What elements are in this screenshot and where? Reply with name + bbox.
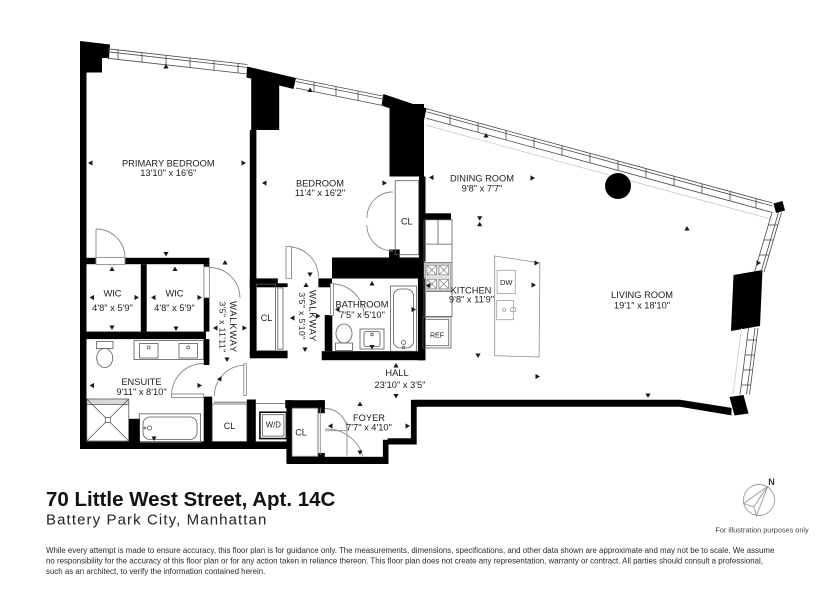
svg-text:WALKWAY: WALKWAY	[308, 290, 319, 342]
svg-text:For illustration purposes only: For illustration purposes only	[715, 526, 809, 535]
svg-text:REF: REF	[430, 333, 444, 340]
svg-text:CL: CL	[261, 313, 273, 323]
svg-text:WIC: WIC	[103, 288, 121, 298]
svg-text:WALKWAY: WALKWAY	[228, 301, 239, 353]
svg-text:DW: DW	[500, 278, 513, 287]
svg-text:Battery Park City, Manhattan: Battery Park City, Manhattan	[46, 512, 267, 529]
svg-text:N: N	[768, 477, 775, 487]
svg-text:BEDROOM: BEDROOM	[296, 178, 344, 188]
svg-text:3'5" x 11'11": 3'5" x 11'11"	[218, 301, 228, 352]
svg-text:4'8" x 5'9": 4'8" x 5'9"	[92, 303, 133, 313]
svg-text:no responsibility for the accu: no responsibility for the accuracy of th…	[46, 557, 763, 566]
svg-text:While every attempt is made to: While every attempt is made to ensure ac…	[46, 546, 775, 555]
svg-text:HALL: HALL	[385, 368, 408, 378]
svg-text:such as an architect, to verif: such as an architect, to verify the info…	[46, 567, 265, 576]
svg-text:WIC: WIC	[165, 288, 183, 298]
svg-text:ENSUITE: ENSUITE	[121, 377, 161, 387]
svg-text:CL: CL	[401, 216, 413, 226]
svg-text:4'8" x 5'9": 4'8" x 5'9"	[154, 303, 195, 313]
svg-text:7'5" x 5'10": 7'5" x 5'10"	[339, 310, 385, 320]
svg-text:9'8" x 7'7": 9'8" x 7'7"	[462, 183, 503, 193]
svg-text:DINING ROOM: DINING ROOM	[450, 173, 514, 183]
svg-text:BATHROOM: BATHROOM	[335, 300, 388, 310]
svg-text:CL: CL	[295, 428, 307, 438]
svg-text:CL: CL	[224, 421, 236, 431]
svg-text:70 Little West Street, Apt. 14: 70 Little West Street, Apt. 14C	[46, 488, 336, 511]
svg-text:9'11" x 8'10": 9'11" x 8'10"	[116, 387, 166, 397]
svg-text:11'4" x 16'2": 11'4" x 16'2"	[295, 188, 345, 198]
svg-text:FOYER: FOYER	[353, 413, 385, 423]
svg-text:3'5" x 5'10": 3'5" x 5'10"	[297, 292, 307, 339]
svg-text:7'7" x 4'10": 7'7" x 4'10"	[346, 423, 392, 433]
svg-text:PRIMARY BEDROOM: PRIMARY BEDROOM	[122, 159, 215, 169]
svg-text:LIVING ROOM: LIVING ROOM	[611, 290, 673, 300]
svg-text:19'1" x 18'10": 19'1" x 18'10"	[614, 300, 670, 310]
svg-text:13'10" x 16'6": 13'10" x 16'6"	[140, 168, 196, 178]
svg-text:W/D: W/D	[266, 421, 282, 430]
svg-text:23'10" x 3'5": 23'10" x 3'5"	[375, 380, 426, 390]
svg-text:9'8" x 11'9": 9'8" x 11'9"	[449, 295, 494, 305]
